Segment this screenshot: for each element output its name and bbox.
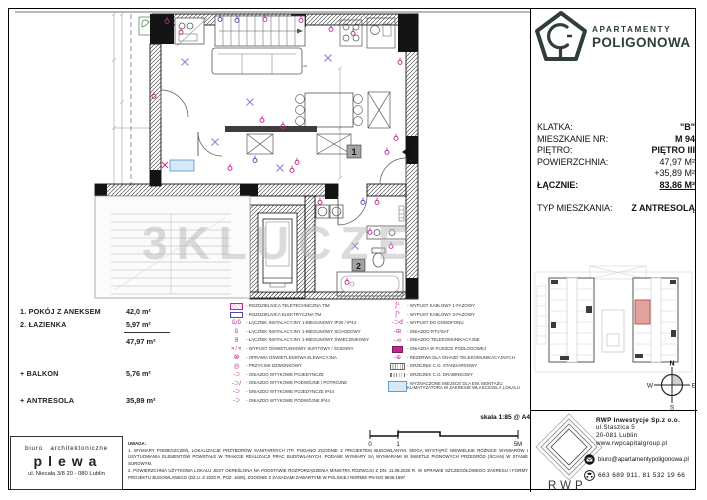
i-dist-elec [227, 312, 246, 319]
compass-e: E [692, 383, 697, 390]
legend-item: WYPUST DO DOMOFONU [388, 319, 529, 328]
i-floorbox [388, 346, 407, 353]
legend-label: GNIAZDO TELEKOMUNIKACYJNE [407, 338, 529, 342]
info-label: KLATKA: [537, 122, 680, 134]
legend-label: ŁĄCZNIK INSTALACYJNY 1-BIEGUNOWY SCHODOW… [246, 330, 385, 334]
room-area: 5,97 m² [126, 318, 170, 331]
legend-item: PRZYCISK DZWONKOWY [227, 362, 385, 371]
i-rtv [388, 329, 407, 335]
email-row: biuro@apartamentypoligonowa.pl [584, 454, 700, 465]
legend-item: ŁĄCZNIK INSTALACYJNY 1-BIEGUNOWY ŚWIECZN… [227, 336, 385, 345]
architect-name: plewa [14, 453, 122, 469]
legend-label: PRZYCISK DZWONKOWY [246, 364, 385, 368]
info-label: ŁĄCZNIE: [537, 180, 659, 192]
i-switch-stair [227, 329, 246, 335]
watermark: 3KLUCZE [142, 216, 417, 270]
legend-label: WYPUST DO DOMOFONU [407, 321, 529, 325]
info-value: +35,89 M² [654, 168, 695, 180]
logo-pentagon-icon [534, 10, 588, 64]
legend-item: GNIAZDA W PUSZCE PODŁOGOWEJ [388, 345, 529, 354]
legend-label: ROZDZIELNICA TELETECHNICZNA TIM [246, 304, 385, 308]
legend-label: ROZDZIELNICA ELEKTRYCZNA TM [246, 313, 385, 317]
logo-wordmark: APARTAMENTY POLIGONOWA [592, 25, 691, 50]
legend-label: GNIAZDA W PUSZCE PODŁOGOWEJ [407, 347, 529, 351]
legend-item: GNIAZDO RTV/SAT [388, 328, 529, 337]
legend-label: GRZEJNIK C.O. STANDARDOWY [407, 364, 529, 368]
info-value: M 94 [675, 134, 695, 146]
i-doorbell [227, 363, 246, 370]
rwp-logo-text: RWP [548, 480, 587, 492]
legend-right-column: WYPUST KABLOWY 1-FAZOWY WYPUST KABLOWY 3… [388, 302, 529, 393]
i-socket1 [227, 372, 246, 378]
room-row: 1. POKÓJ Z ANEKSEM 42,0 m² [20, 305, 170, 318]
legend-label: GNIAZDO WTYKOWE POJEDYNCZE [246, 373, 385, 377]
room-row: 2. ŁAZIENKA 5,97 m² [20, 318, 170, 331]
legend-label: GNIAZDO WTYKOWE PODWÓJNE IP44 [246, 399, 385, 403]
legend-item: WYPUST OŚWIETLENIOWY SUFITOWY / ŚCIENNY [227, 345, 385, 354]
company-city: 20-081 Lublin [596, 432, 700, 440]
logo-line1: APARTAMENTY [592, 25, 691, 34]
kitchen-corner [175, 18, 207, 46]
i-ac-spot [388, 381, 407, 392]
highlighted-unit [635, 300, 650, 324]
company-phones: 663 689 911, 81 532 19 66 [598, 472, 685, 479]
legend-label: GRZEJNIK C.O. DRABINKOWY [407, 373, 529, 377]
legend-item: REZERWA DLA GNIAZD TELEKOMUNIKACYJNYCH [388, 354, 529, 363]
ac-spot [162, 160, 194, 171]
email-icon [584, 454, 595, 465]
dining-table [296, 93, 363, 127]
total-area: 47,97 m² [126, 335, 170, 348]
info-row: TYP MIESZKANIA: Z ANTRESOLĄ [537, 203, 695, 215]
kitchen-island [225, 126, 317, 132]
legend-label: ŁĄCZNIK INSTALACYJNY 1-BIEGUNOWY IP20 / … [246, 321, 385, 325]
i-rad-std [388, 363, 407, 370]
info-label: POWIERZCHNIA: [537, 157, 659, 169]
phone-icon [584, 470, 595, 481]
i-socket2-ip44 [227, 398, 246, 404]
i-telecom-res [388, 355, 407, 361]
wardrobes [247, 92, 390, 154]
legend-item: ROZDZIELNICA TELETECHNICZNA TIM [227, 302, 385, 311]
i-socket23 [227, 381, 246, 387]
architect-box: biuro architektoniczne plewa ul. Niecała… [10, 436, 123, 490]
legend-label: GNIAZDO WTYKOWE PODWÓJNE / POTRÓJNE [246, 381, 385, 385]
info-row: PIĘTRO: PIĘTRO III [537, 145, 695, 157]
notes-line2: 2. POWIERZCHNIA UŻYTKOWA LOKALU JEST OKR… [128, 468, 528, 481]
i-switch [227, 320, 246, 326]
room-area: 42,0 m² [126, 305, 170, 318]
developer-contact: RWP Inwestycje Sp.z o.o. ul.Staszica 5 2… [596, 417, 700, 481]
compass-n: N [669, 361, 674, 368]
compass-s: S [670, 405, 675, 411]
info-label: TYP MIESZKANIA: [537, 203, 631, 215]
phone-row: 663 689 911, 81 532 19 66 [584, 470, 700, 481]
room-name: 1. POKÓJ Z ANEKSEM [20, 305, 126, 318]
info-value: Z ANTRESOLĄ [631, 203, 695, 215]
i-intercom [388, 320, 407, 326]
sofa [212, 48, 302, 74]
legend-label: REZERWA DLA GNIAZD TELEKOMUNIKACYJNYCH [407, 356, 529, 360]
room-name: 2. ŁAZIENKA [20, 318, 126, 331]
i-rad-ladder [388, 373, 407, 377]
legend-item: GRZEJNIK C.O. DRABINKOWY [388, 371, 529, 380]
building-right [633, 278, 678, 362]
antresola-row: + ANTRESOLA 35,89 m² [20, 394, 170, 407]
info-row: KLATKA: "B" [537, 122, 695, 134]
legend-label: WYPUST OŚWIETLENIOWY SUFITOWY / ŚCIENNY [246, 347, 385, 351]
building-left [549, 278, 594, 362]
notes-heading: UWAGA: [128, 441, 146, 446]
info-row: ŁĄCZNIE: 83,86 M² [537, 180, 695, 192]
room-1-marker: 1 [351, 147, 356, 157]
i-switch-chand [227, 338, 246, 344]
compass-w: W [647, 383, 654, 390]
legend-label: ŁĄCZNIK INSTALACYJNY 1-BIEGUNOWY ŚWIECZN… [246, 338, 385, 342]
legend-label: WYZNACZONE MIEJSCE DLA EW. MONTAŻU KLIMA… [407, 382, 529, 391]
legend-left-column: ROZDZIELNICA TELETECHNICZNA TIM ROZDZIEL… [227, 302, 385, 405]
legend-item: GNIAZDO WTYKOWE POJEDYNCZE IP44 [227, 388, 385, 397]
info-value: "B" [680, 122, 695, 134]
legend-item: ROZDZIELNICA ELEKTRYCZNA TM [227, 311, 385, 320]
legend-item: GNIAZDO WTYKOWE POJEDYNCZE [227, 371, 385, 380]
legend-item: GNIAZDO WTYKOWE PODWÓJNE IP44 [227, 397, 385, 406]
legend-item: GRZEJNIK C.O. STANDARDOWY [388, 362, 529, 371]
company-street: ul.Staszica 5 [596, 424, 700, 432]
company-email[interactable]: biuro@apartamentypoligonowa.pl [598, 456, 689, 463]
legend-item: GNIAZDO TELEKOMUNIKACYJNE [388, 336, 529, 345]
i-facade-light [227, 354, 246, 361]
room-list: 1. POKÓJ Z ANEKSEM 42,0 m² 2. ŁAZIENKA 5… [20, 305, 170, 407]
i-telecom [388, 338, 407, 344]
company-name: RWP Inwestycje Sp.z o.o. [596, 417, 700, 424]
notes-line1: 1. WYMIARY POMIESZCZEŃ, LOKALIZACJE PRZY… [128, 448, 528, 468]
architect-address: ul. Niecała 3/8 20 - 080 Lublin [11, 471, 122, 477]
i-dist-tele [227, 303, 246, 310]
logo-line2: POLIGONOWA [592, 35, 691, 50]
legend-label: GNIAZDO WTYKOWE POJEDYNCZE IP44 [246, 390, 385, 394]
legend-label: WYPUST KABLOWY 1-FAZOWY [407, 304, 529, 308]
total-separator [124, 332, 170, 333]
info-label [537, 168, 654, 180]
info-row: +35,89 M² [537, 168, 695, 180]
legend-item: ŁĄCZNIK INSTALACYJNY 1-BIEGUNOWY IP20 / … [227, 319, 385, 328]
floor-plan-sheet: 1 2 3KLUCZE [0, 0, 707, 500]
scale-label: skala 1:85 @ A4 [368, 414, 530, 421]
i-light-out [227, 347, 246, 352]
legend-item: GNIAZDO WTYKOWE PODWÓJNE / POTRÓJNE [227, 379, 385, 388]
room-total-row: 47,97 m² [20, 335, 170, 348]
balkon-row: + BALKON 5,76 m² [20, 367, 170, 380]
i-cable3 [388, 312, 407, 318]
i-cable1 [388, 303, 407, 309]
compass-icon: N S W E [646, 360, 698, 410]
legend-item: OPRAWA OŚWIETLENIOWA ELEWACYJNA [227, 354, 385, 363]
company-website[interactable]: www.rwpcapitalgroup.pl [596, 440, 700, 448]
info-value: PIĘTRO III [651, 145, 695, 157]
legend-label: WYPUST KABLOWY 3-FAZOWY [407, 313, 529, 317]
legend-label: OPRAWA OŚWIETLENIOWA ELEWACYJNA [246, 356, 385, 360]
i-socket1-ip44 [227, 389, 246, 395]
legend-item: ŁĄCZNIK INSTALACYJNY 1-BIEGUNOWY SCHODOW… [227, 328, 385, 337]
architect-line1: biuro architektoniczne [11, 445, 122, 452]
legend-label: GNIAZDO RTV/SAT [407, 330, 529, 334]
legend-item: WYPUST KABLOWY 3-FAZOWY [388, 311, 529, 320]
legend-item: WYPUST KABLOWY 1-FAZOWY [388, 302, 529, 311]
apartment-info: KLATKA: "B" MIESZKANIE NR: M 94 PIĘTRO: … [537, 122, 695, 214]
info-value: 47,97 M² [659, 157, 695, 169]
legend-item: WYZNACZONE MIEJSCE DLA EW. MONTAŻU KLIMA… [388, 379, 529, 393]
info-row: POWIERZCHNIA: 47,97 M² [537, 157, 695, 169]
info-label: PIĘTRO: [537, 145, 651, 157]
notes-block: UWAGA: 1. WYMIARY POMIESZCZEŃ, LOKALIZAC… [128, 441, 528, 481]
info-label: MIESZKANIE NR: [537, 134, 675, 146]
info-row: MIESZKANIE NR: M 94 [537, 134, 695, 146]
door-arcs [161, 90, 406, 184]
info-value: 83,86 M² [659, 180, 695, 192]
